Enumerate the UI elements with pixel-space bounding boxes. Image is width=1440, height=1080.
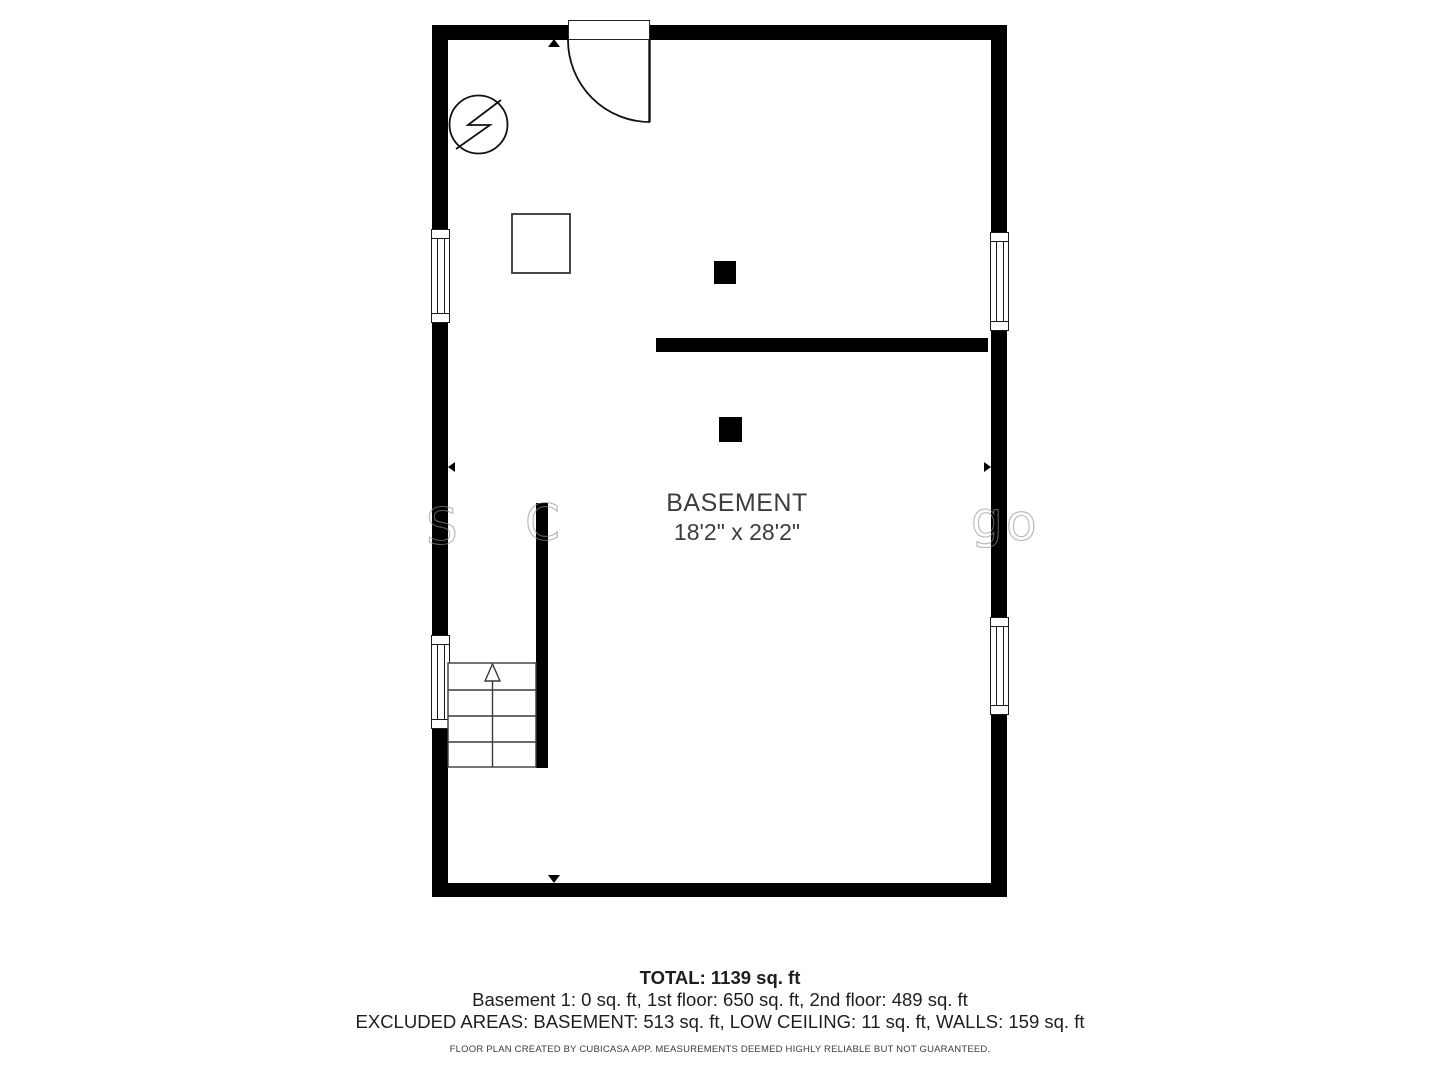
direction-marker-right-icon: [984, 462, 991, 472]
electrical-panel-icon: [450, 96, 508, 154]
direction-marker-up-icon: [548, 39, 560, 47]
column-post-lower: [719, 417, 742, 442]
column-post-upper: [714, 261, 736, 284]
disclaimer-text: FLOOR PLAN CREATED BY CUBICASA APP. MEAS…: [0, 1044, 1440, 1055]
direction-marker-down-icon: [548, 875, 560, 883]
direction-marker-left-icon: [448, 462, 455, 472]
room-name-label: BASEMENT: [537, 489, 937, 518]
total-area-text: TOTAL: 1139 sq. ft: [0, 967, 1440, 989]
floorplan-page: S C g o BASEMENT 18'2" x 28'2" TOTAL: 11…: [0, 0, 1440, 1080]
stairs-up-icon: [448, 663, 536, 767]
watermark-letter: o: [1006, 494, 1037, 552]
excluded-areas-text: EXCLUDED AREAS: BASEMENT: 513 sq. ft, LO…: [0, 1011, 1440, 1033]
room-dimensions-label: 18'2" x 28'2": [537, 519, 937, 546]
watermark-letter: S: [426, 498, 458, 556]
floor-areas-text: Basement 1: 0 sq. ft, 1st floor: 650 sq.…: [0, 989, 1440, 1011]
door-swing-icon: [568, 40, 650, 122]
watermark-letter: g: [971, 491, 1003, 549]
utility-fixture: [512, 214, 570, 273]
